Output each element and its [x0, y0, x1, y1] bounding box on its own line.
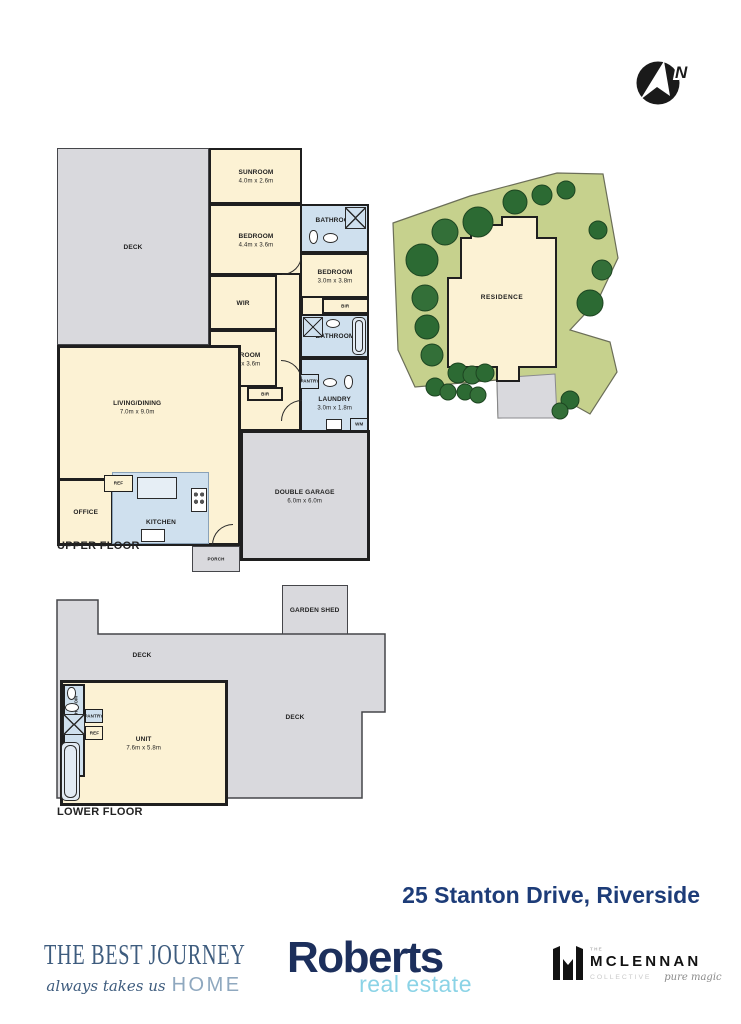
- bathtub-icon: [352, 317, 366, 355]
- room-label: WIR: [236, 298, 249, 307]
- property-address: 25 Stanton Drive, Riverside: [402, 882, 700, 909]
- mclennan-script: pure magic: [664, 972, 721, 983]
- room-label: LIVING/DINING7.0m x 9.0m: [113, 398, 161, 415]
- sink-icon: [323, 378, 337, 387]
- room-unit-pantry: PANTRY: [85, 709, 103, 723]
- room-label: UNIT7.6m x 5.8m: [127, 735, 162, 752]
- toilet-icon: [309, 230, 318, 244]
- deck-label-2: DECK: [273, 710, 317, 724]
- kitchen-sink-icon: [141, 529, 165, 542]
- roberts-logo: Roberts real estate: [287, 936, 472, 996]
- room-pantry: PANTRY: [300, 374, 319, 389]
- room-label: OFFICE: [73, 508, 98, 517]
- mclennan-name: MCLENNAN: [590, 953, 722, 971]
- room-label: BEDROOM4.4m x 3.6m: [238, 231, 273, 248]
- sink-icon: [65, 703, 79, 712]
- stove-icon: [191, 488, 207, 512]
- room-label: PORCH: [207, 556, 224, 562]
- room-label: PANTRY: [85, 713, 104, 719]
- bathtub-icon: [61, 742, 80, 801]
- room-label: KITCHEN: [146, 518, 176, 527]
- deck-label-1: DECK: [120, 648, 164, 662]
- shower-icon: [303, 317, 323, 337]
- upper-floor-title: UPPER FLOOR: [57, 540, 140, 552]
- sink-icon: [323, 233, 338, 243]
- residence-label: RESIDENCE: [481, 294, 524, 301]
- room-unit: UNIT7.6m x 5.8m: [60, 680, 228, 806]
- room-bedroom-2: BEDROOM3.0m x 3.8m: [300, 253, 369, 298]
- room-label: REF: [114, 480, 123, 486]
- mclennan-collective: COLLECTIVE: [590, 974, 651, 981]
- room-label: DECK: [123, 242, 142, 251]
- room-label: BIR: [341, 303, 349, 309]
- mclennan-logo: THE MCLENNAN COLLECTIVE pure magic: [553, 946, 722, 983]
- room-bir-2: BIR: [247, 387, 283, 401]
- room-label: WM: [355, 421, 363, 427]
- sink-icon: [326, 319, 340, 328]
- journey-logo: THE BEST JOURNEY always takes usHOME: [44, 940, 259, 997]
- floorplan-page: N DECK SUNROOM4.0m x 2.6m BEDROOM4.4m x …: [0, 0, 741, 1024]
- site-plan: RESIDENCE: [390, 168, 622, 424]
- room-label: REF: [89, 730, 98, 736]
- room-label: DOUBLE GARAGE6.0m x 6.0m: [275, 487, 335, 504]
- room-double-garage: DOUBLE GARAGE6.0m x 6.0m: [240, 430, 370, 561]
- room-label: PANTRY: [300, 378, 319, 384]
- journey-home: HOME: [172, 974, 242, 996]
- toilet-icon: [67, 687, 76, 700]
- shower-icon: [345, 207, 366, 229]
- journey-title: THE BEST JOURNEY: [44, 940, 199, 972]
- fridge-box: REF: [104, 475, 133, 492]
- room-porch: PORCH: [192, 546, 240, 572]
- shower-icon: [63, 714, 85, 735]
- room-label: BEDROOM3.0m x 3.8m: [317, 267, 352, 284]
- room-label: SUNROOM4.0m x 2.6m: [238, 168, 273, 185]
- room-sunroom: SUNROOM4.0m x 2.6m: [209, 148, 302, 204]
- kitchen-island-icon: [137, 477, 177, 499]
- lower-floor-title: LOWER FLOOR: [57, 806, 143, 818]
- room-label: LAUNDRY3.0m x 1.8m: [302, 392, 368, 414]
- mclennan-the: THE: [590, 947, 676, 952]
- laundry-tub-icon: [326, 419, 342, 430]
- journey-script: always takes us: [46, 977, 165, 995]
- north-compass-icon: N: [630, 48, 710, 128]
- room-label: BIR: [261, 391, 269, 397]
- toilet-icon: [344, 375, 353, 389]
- unit-fridge-box: REF: [85, 726, 103, 740]
- compass-n-label: N: [675, 63, 688, 82]
- room-wir: WIR: [209, 275, 277, 330]
- room-deck-upper: DECK: [57, 148, 209, 345]
- mclennan-mark-icon: [553, 946, 583, 982]
- room-bir-1: BIR: [322, 298, 369, 314]
